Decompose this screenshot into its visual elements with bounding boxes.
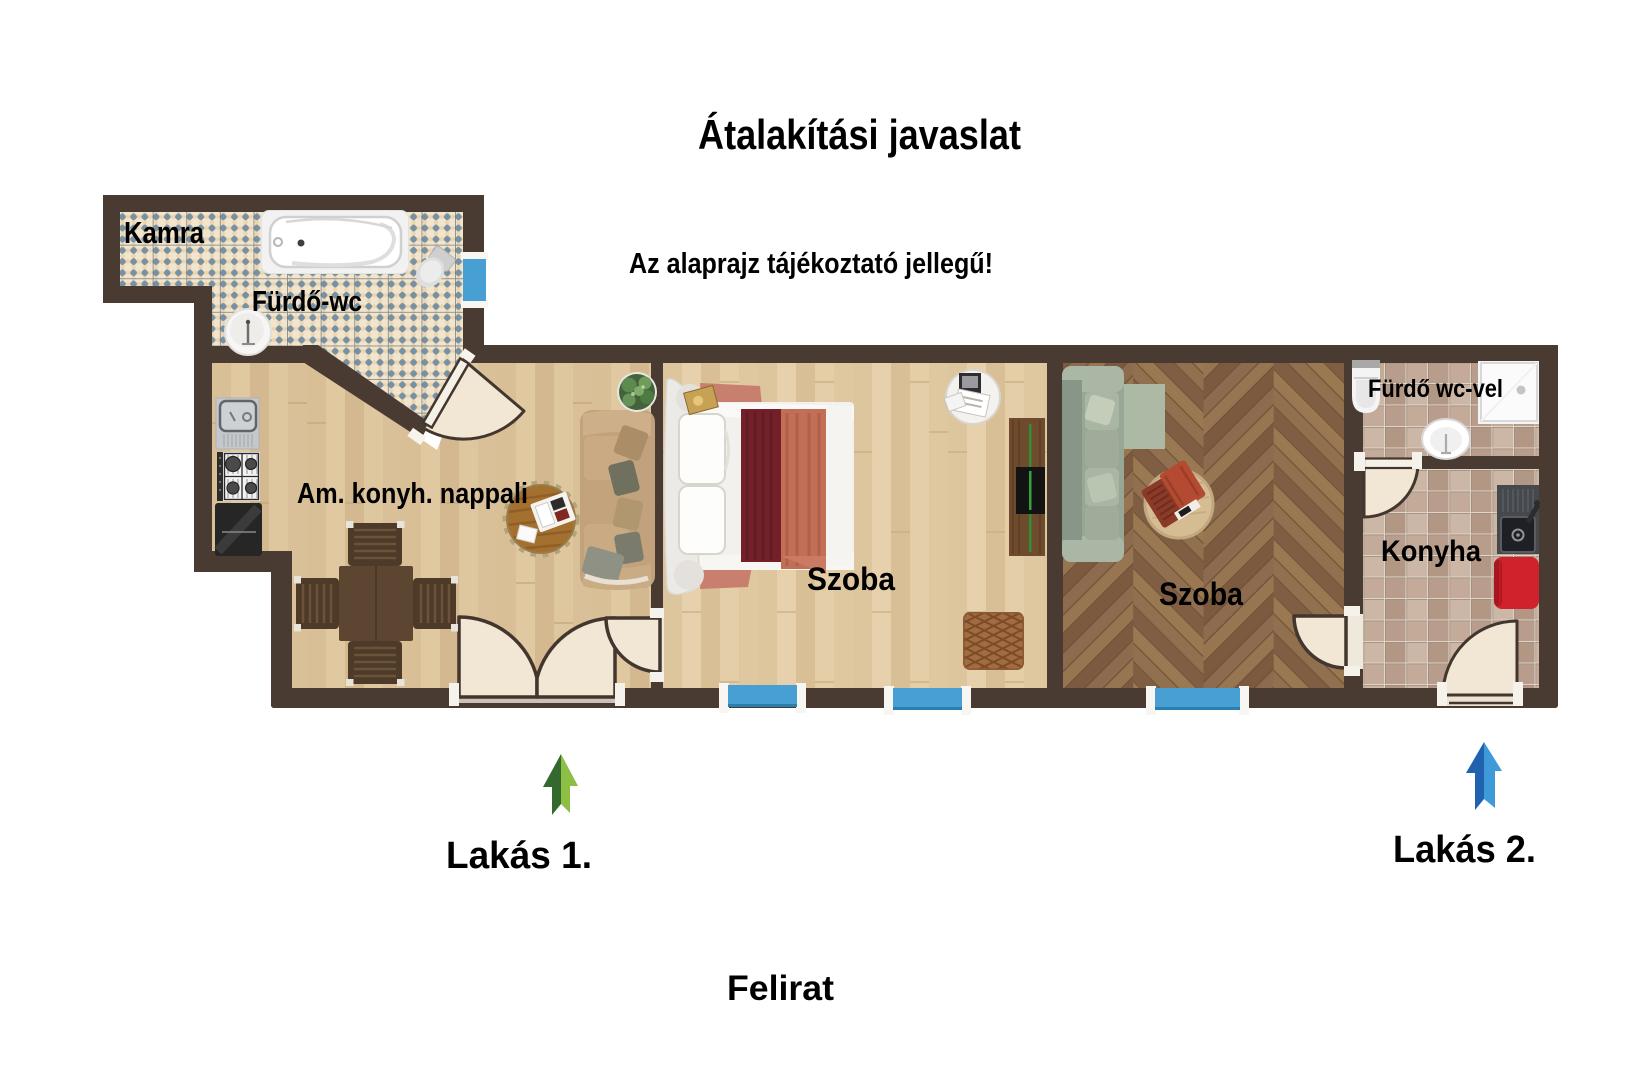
svg-text:Felirat: Felirat [727, 969, 834, 1008]
svg-text:Kamra: Kamra [124, 215, 205, 250]
svg-text:Szoba: Szoba [807, 561, 895, 597]
svg-text:Fürdő wc-vel: Fürdő wc-vel [1368, 375, 1503, 403]
svg-text:Am. konyh. nappali: Am. konyh. nappali [297, 478, 528, 510]
svg-text:Lakás 2.: Lakás 2. [1393, 829, 1536, 871]
svg-text:Konyha: Konyha [1381, 535, 1481, 568]
svg-text:Átalakítási javaslat: Átalakítási javaslat [698, 111, 1021, 158]
svg-text:Szoba: Szoba [1159, 576, 1243, 612]
svg-text:Fürdő-wc: Fürdő-wc [252, 286, 362, 318]
svg-text:Lakás 1.: Lakás 1. [446, 835, 592, 877]
svg-text:Az alaprajz tájékoztató jelleg: Az alaprajz tájékoztató jellegű! [629, 248, 993, 280]
